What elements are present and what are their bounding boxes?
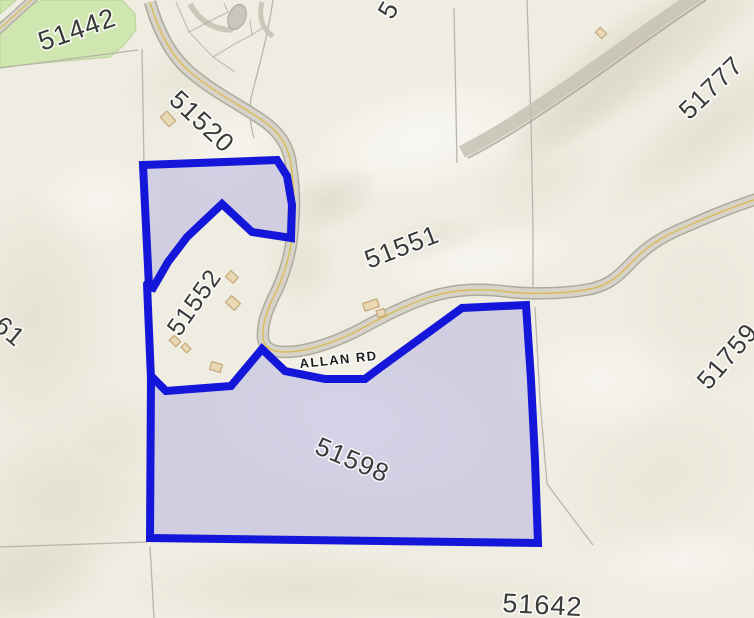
map-canvas[interactable]: 51442 51520 5 51777 51551 51552 61 51759… <box>0 0 754 618</box>
map-viewport[interactable]: 51442 51520 5 51777 51551 51552 61 51759… <box>0 0 754 618</box>
parcel-label-51642: 51642 <box>502 588 584 618</box>
selection-shared-edge <box>147 284 151 379</box>
building-icon <box>376 308 386 317</box>
